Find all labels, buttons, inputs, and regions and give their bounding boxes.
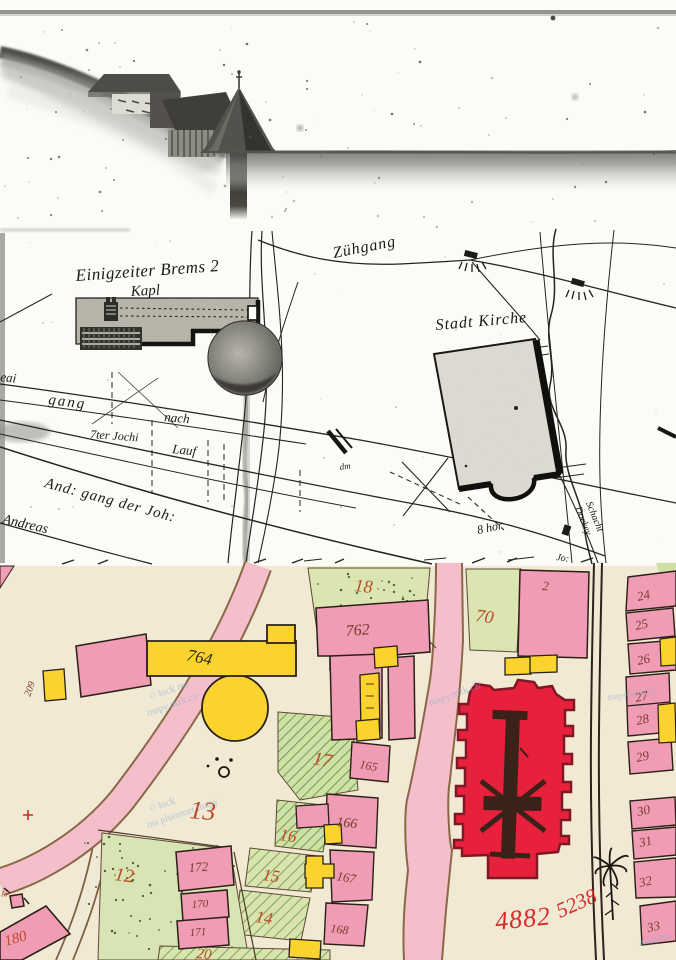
svg-text:18: 18 xyxy=(354,575,374,597)
svg-text:12: 12 xyxy=(113,864,135,888)
svg-text:14: 14 xyxy=(254,907,274,928)
svg-text:70: 70 xyxy=(474,605,495,627)
svg-text:15: 15 xyxy=(261,865,280,886)
svg-text:Lauf: Lauf xyxy=(171,441,200,459)
svg-text:168: 168 xyxy=(330,921,350,937)
svg-text:dm: dm xyxy=(339,460,352,472)
svg-text:Jo:: Jo: xyxy=(556,552,570,565)
svg-text:762: 762 xyxy=(345,621,370,640)
svg-text:172: 172 xyxy=(188,859,209,875)
svg-text:20: 20 xyxy=(196,946,213,960)
svg-text:166: 166 xyxy=(336,815,358,832)
svg-text:170: 170 xyxy=(191,898,209,911)
svg-text:171: 171 xyxy=(189,926,206,939)
svg-text:nach: nach xyxy=(164,409,190,426)
svg-text:Kapl: Kapl xyxy=(129,282,160,300)
svg-text:4882: 4882 xyxy=(494,901,553,936)
svg-text:16: 16 xyxy=(278,825,298,846)
svg-text:eai: eai xyxy=(0,369,17,386)
